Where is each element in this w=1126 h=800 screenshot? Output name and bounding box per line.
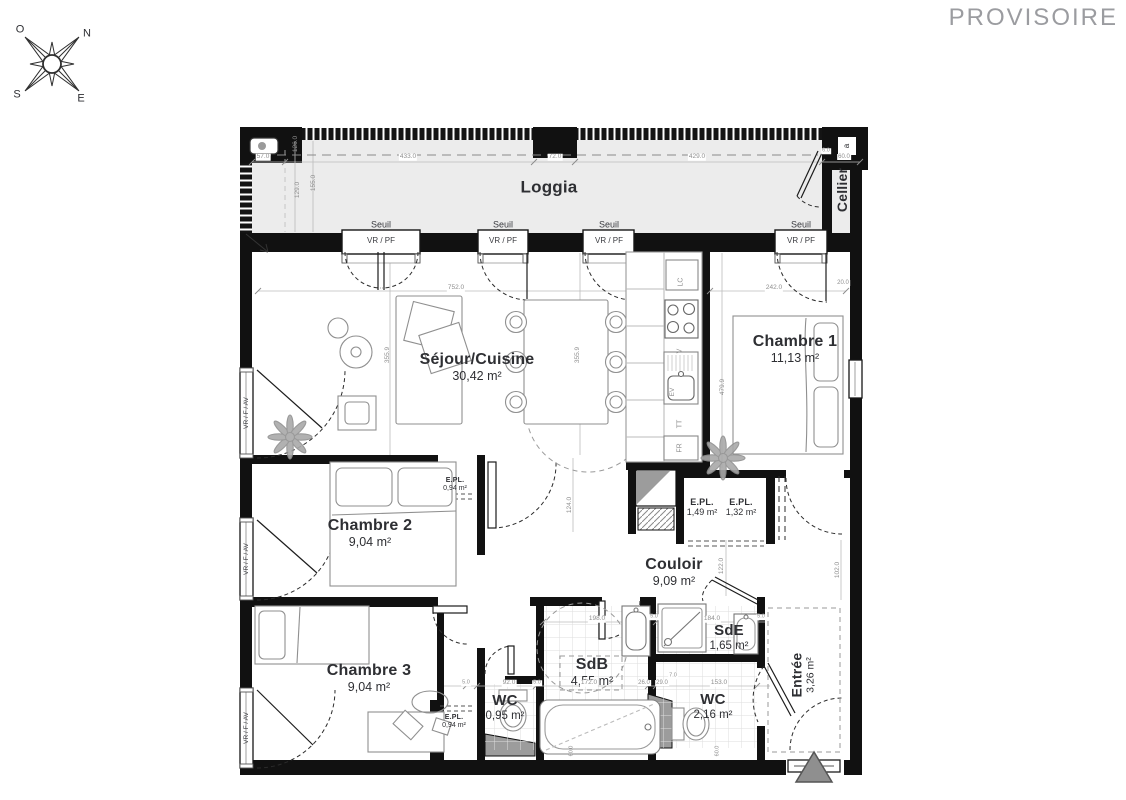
bed-chambre-2 <box>330 462 456 586</box>
bed-chambre-1 <box>733 316 843 454</box>
floor-plan-page: PROVISOIRE <box>0 0 1126 800</box>
side-tables <box>328 318 376 430</box>
toilet-wc-2 <box>672 708 709 740</box>
compass-rose-icon <box>25 37 79 91</box>
kitchen-counter <box>626 252 702 462</box>
plant-icon <box>268 415 312 459</box>
plant-icon <box>701 436 745 480</box>
sofa <box>396 296 471 424</box>
toilet-wc-1 <box>499 690 527 731</box>
bed-chambre-3 <box>255 606 369 664</box>
floor-plan-drawing <box>0 0 1126 800</box>
provisoire-watermark: PROVISOIRE <box>949 4 1118 32</box>
dining-table <box>506 300 627 424</box>
